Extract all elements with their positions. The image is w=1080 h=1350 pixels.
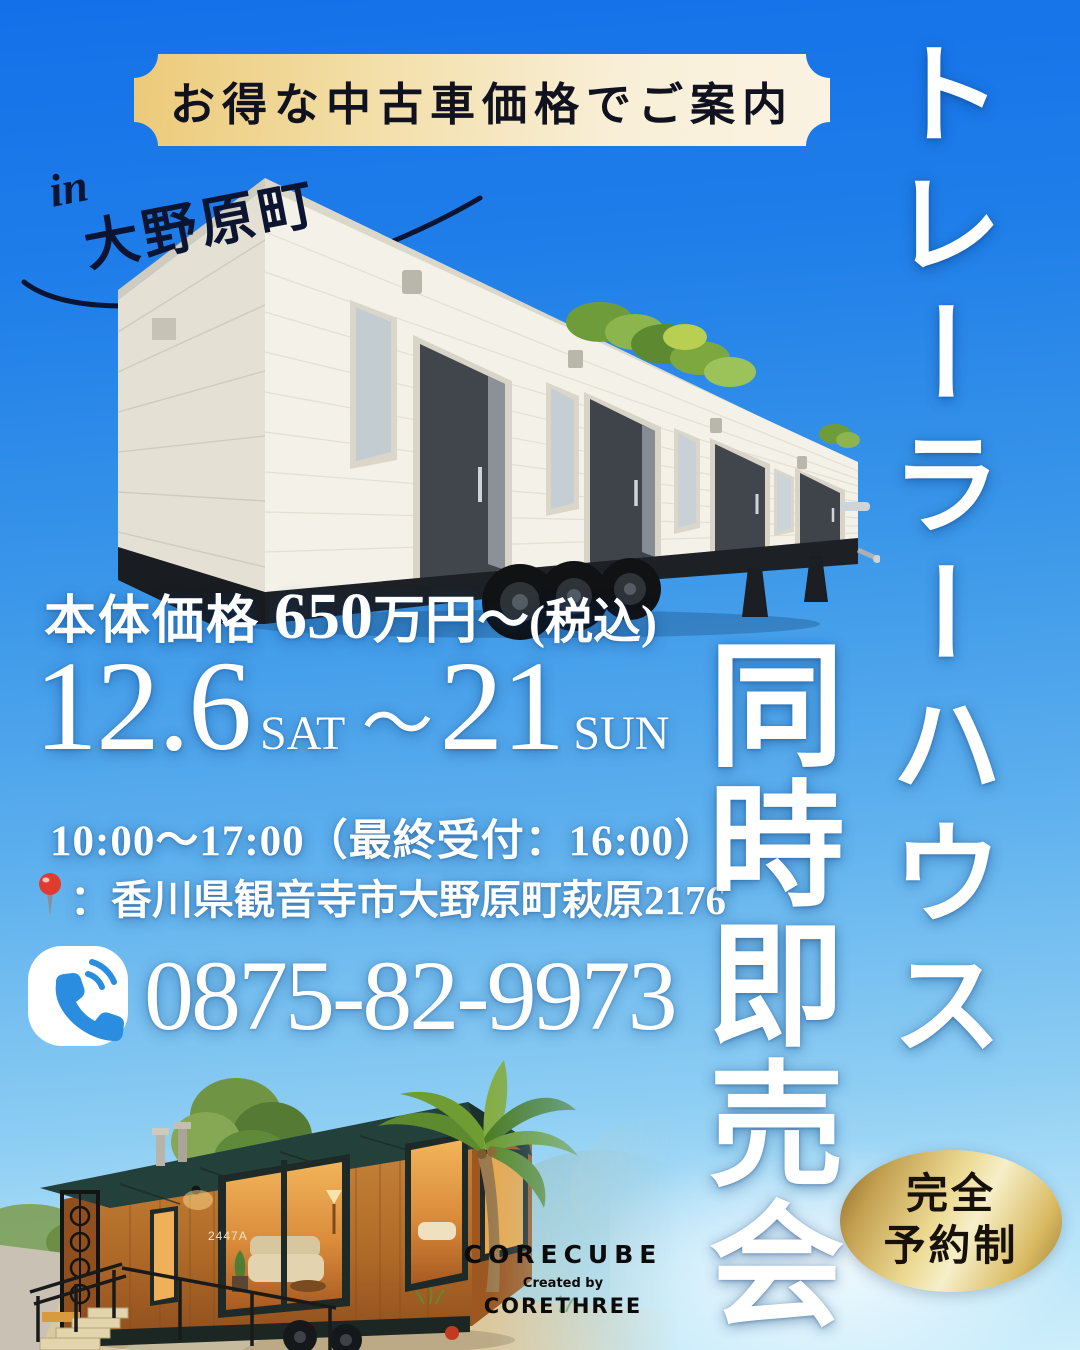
map-pin-icon: [36, 872, 64, 920]
phone-number: 0875-82-9973: [144, 946, 675, 1046]
house-number: 2447A: [208, 1229, 248, 1243]
badge-line2: 予約制: [883, 1221, 1018, 1274]
brand-logo: CORECUBE Created by CORETHREE: [438, 1240, 688, 1318]
opening-hours: 10:00〜17:00（最終受付：16:00）: [50, 806, 718, 868]
venue-colon: ：: [70, 866, 111, 926]
brand-credit: Created by: [438, 1276, 688, 1291]
reservation-badge: 完全 予約制: [840, 1150, 1062, 1292]
date-range-tilde: 〜: [361, 665, 433, 770]
vent: [152, 318, 176, 340]
lamp-glow: [183, 1190, 213, 1210]
start-date: 12.6: [34, 642, 250, 770]
cabin-narrow-window: [150, 1206, 178, 1306]
title-trailer-house: トレーラーハウス: [856, 36, 1016, 1126]
title-simultaneous-sale: 同時即売会: [680, 634, 846, 1350]
event-dates: 12.6 SAT 〜 21 SUN: [34, 642, 679, 770]
venue-line: ： 香川県観音寺市大野原町萩原2176: [36, 866, 726, 926]
phone-line: 0875-82-9973: [26, 944, 675, 1048]
venue-address: 香川県観音寺市大野原町萩原2176: [111, 866, 726, 926]
event-poster: 2447A: [0, 0, 1080, 1350]
company-name: CORETHREE: [438, 1294, 688, 1318]
brand-name: CORECUBE: [438, 1240, 688, 1269]
end-date: 21: [439, 642, 563, 770]
end-weekday: SUN: [573, 706, 669, 761]
badge-line1: 完全: [906, 1169, 996, 1222]
phone-icon: [26, 944, 130, 1048]
start-weekday: SAT: [260, 706, 345, 761]
